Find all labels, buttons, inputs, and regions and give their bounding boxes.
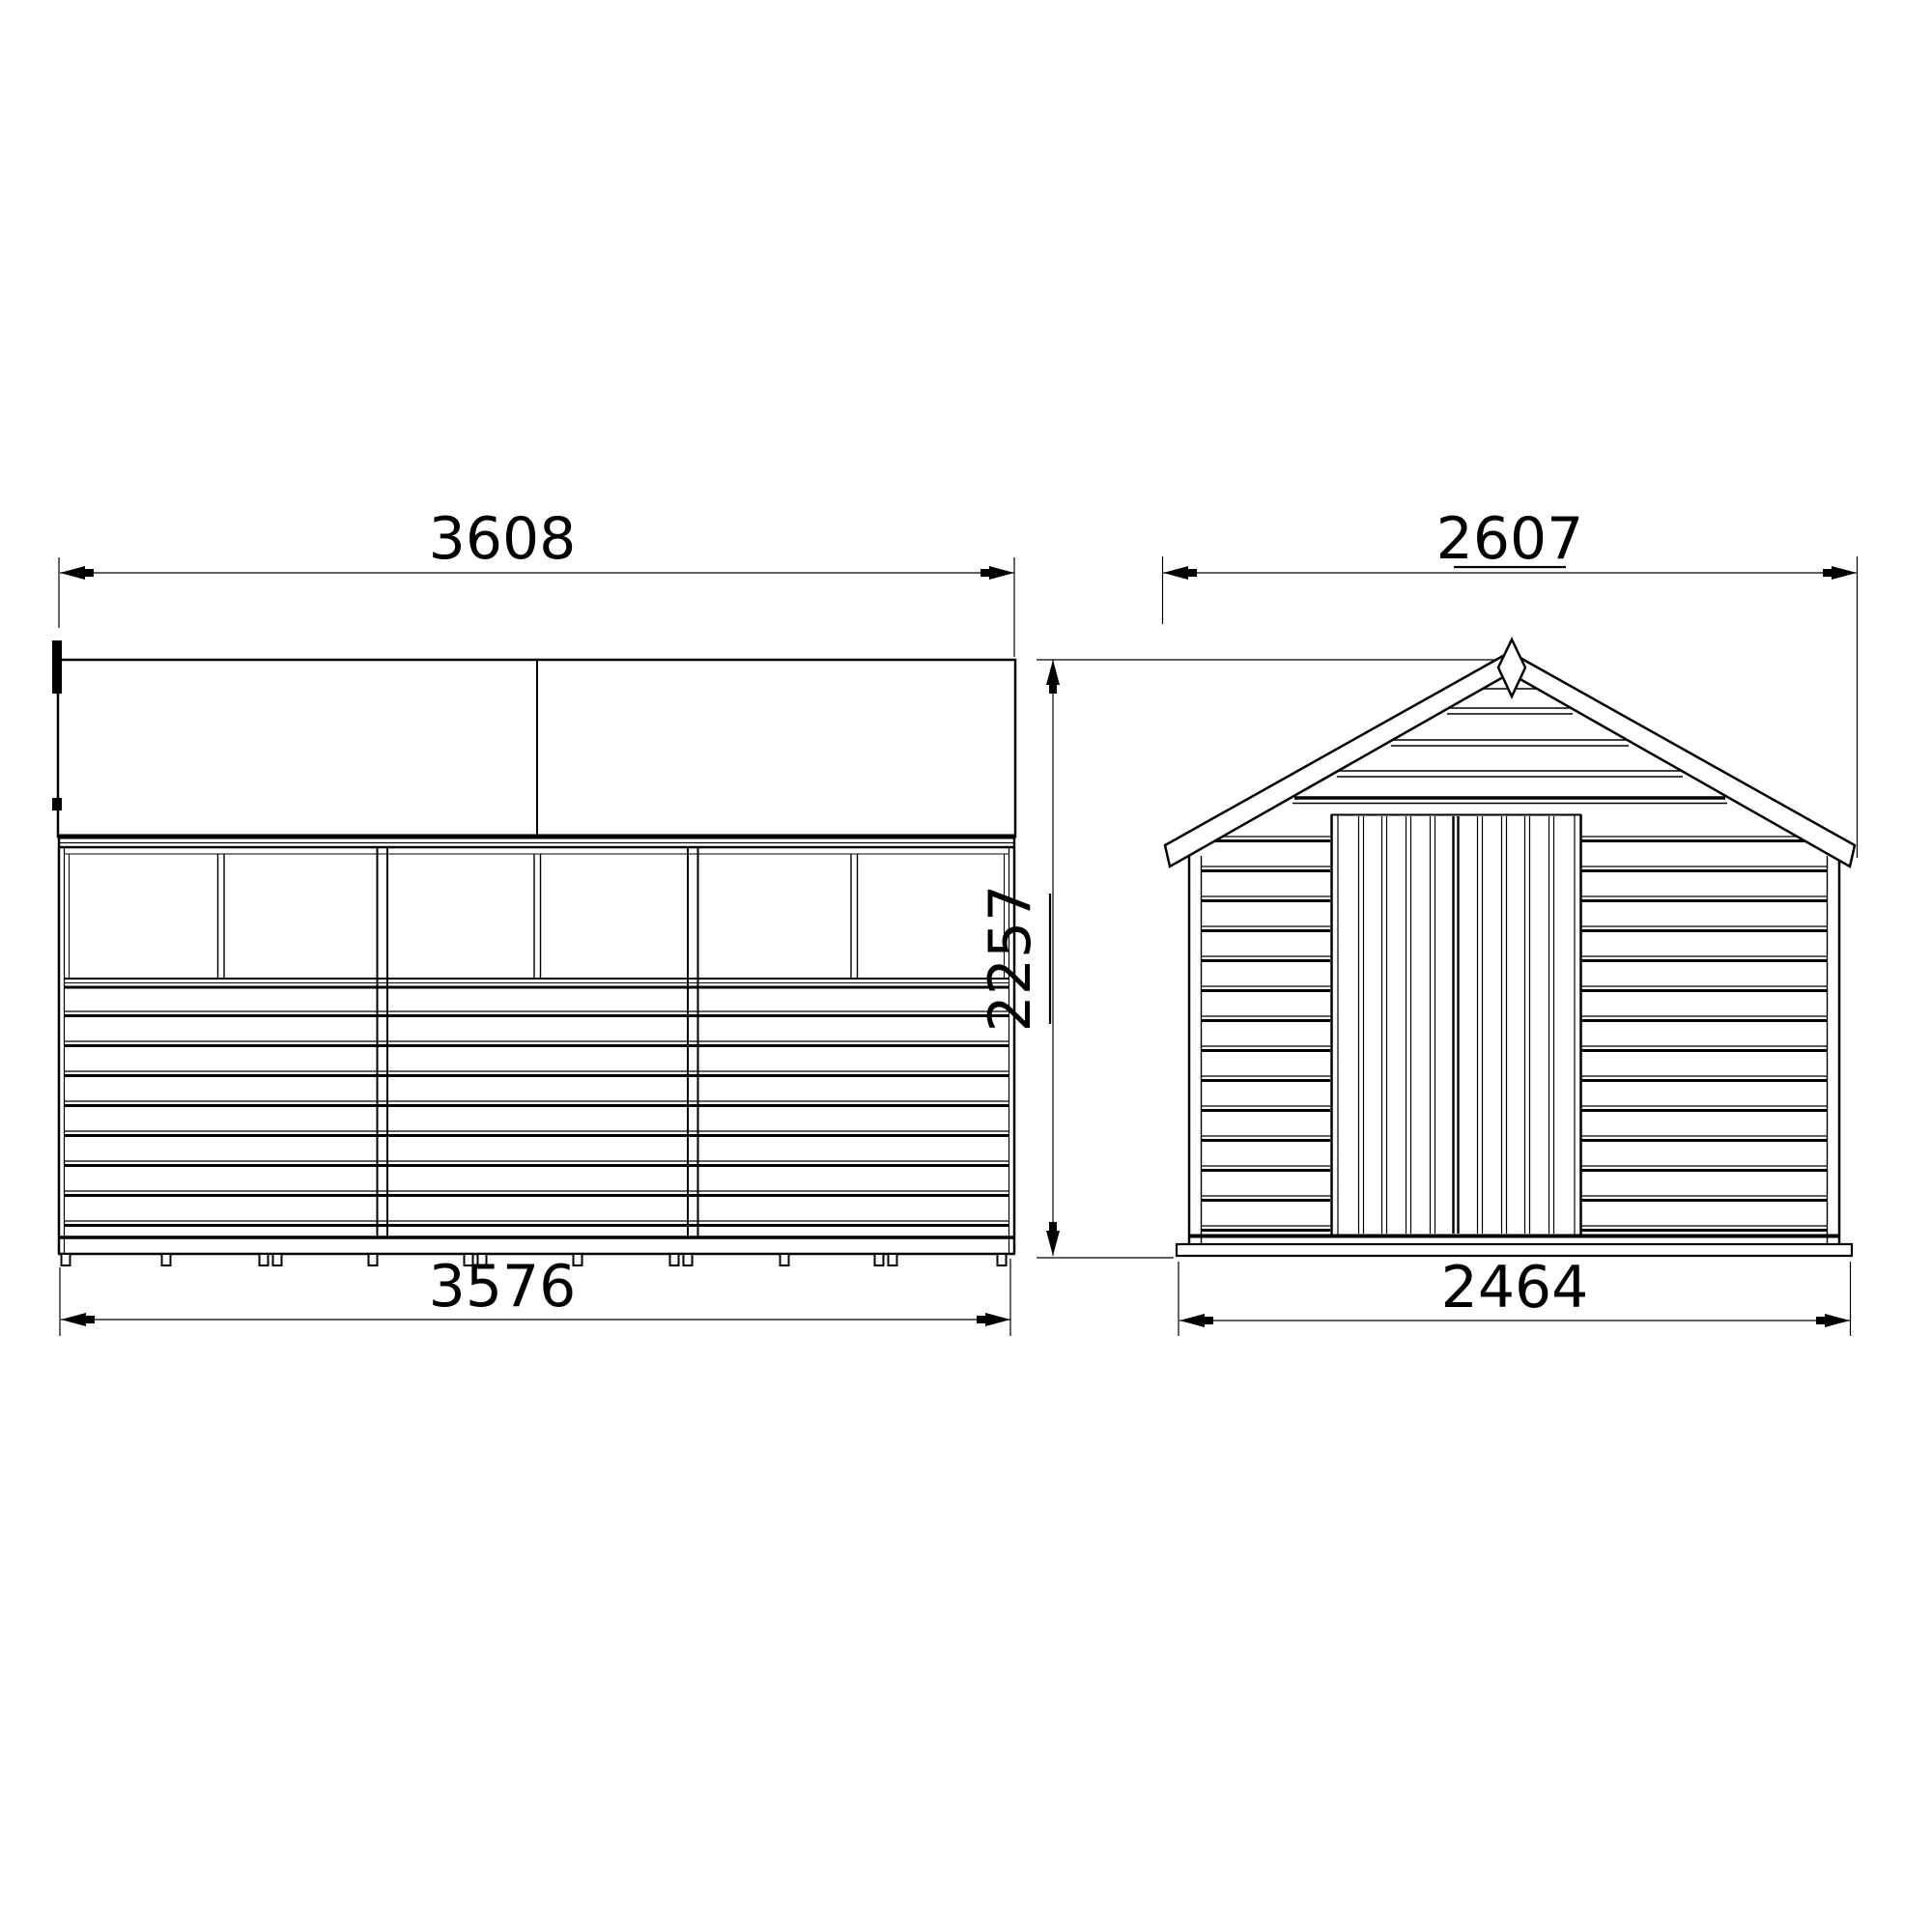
dim-arrow-down [1046,1231,1060,1256]
dim-arrow-left [1179,1314,1205,1327]
fascia-end-cap [52,798,62,810]
front-wall [1177,814,1852,1256]
front-elevation-view: 2607 2257 2464 [977,505,1858,1336]
side-base-width-label: 3576 [429,1253,577,1321]
dim-arrow-right [985,1313,1010,1326]
dim-arrow-right [1825,1314,1850,1327]
finial-diamond [1498,639,1525,696]
front-overall-width-label: 2607 [1436,505,1584,573]
side-overall-width-label: 3608 [429,505,577,573]
dim-arrow-right [1832,566,1857,580]
front-door [1331,814,1581,1236]
front-cladding-left [1202,814,1330,1234]
front-cladding-right [1581,814,1827,1234]
dimension-side-base-width: 3576 [60,1253,1010,1336]
door-planks [1359,816,1554,1234]
side-window-band [64,854,1009,987]
front-base-width-label: 2464 [1441,1254,1589,1321]
dim-arrow-left [1163,566,1188,580]
dimension-side-overall-width: 3608 [59,505,1014,657]
dim-arrow-up [1046,660,1060,685]
dim-arrow-left [61,1313,86,1326]
dimension-front-base-width: 2464 [1179,1254,1851,1336]
side-elevation-view: 3608 3576 [52,505,1015,1336]
dim-arrow-left [60,566,85,580]
technical-drawing-page: 3608 3576 [0,0,1932,1932]
side-cladding [58,987,1015,1254]
dim-arrow-right [989,566,1014,580]
side-roof [52,640,1015,847]
roof-barge-end-cap [52,640,62,694]
shed-dimension-drawing: 3608 3576 [0,0,1932,1932]
front-overall-height-label: 2257 [977,885,1044,1033]
